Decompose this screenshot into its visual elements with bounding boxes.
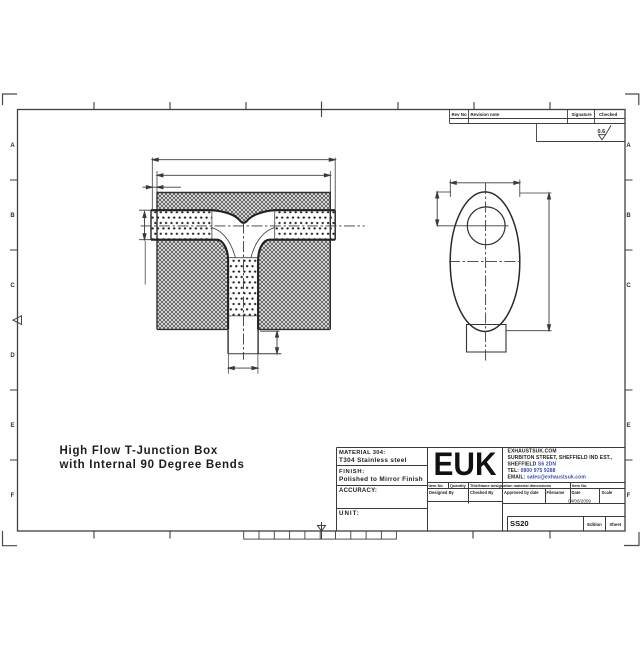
svg-text:04/06/2009: 04/06/2009 [568,498,591,503]
svg-text:EUK: EUK [434,446,497,482]
svg-text:UNIT:: UNIT: [339,510,360,517]
svg-text:SS20: SS20 [510,519,529,528]
svg-text:Edition: Edition [587,522,602,527]
svg-text:FINISH:: FINISH: [339,469,365,475]
svg-text:B: B [626,213,631,219]
svg-text:Item No: Item No [429,483,444,488]
svg-text:F: F [11,493,15,499]
svg-text:F: F [627,493,631,499]
svg-text:Polished to Mirror Finish: Polished to Mirror Finish [339,476,423,483]
svg-text:EMAIL: sales@exhaustsuk.com: EMAIL: sales@exhaustsuk.com [508,475,587,481]
svg-text:Checked By: Checked By [470,490,494,495]
svg-text:A: A [10,143,15,149]
svg-text:EXHAUSTSUK.COM: EXHAUSTSUK.COM [508,449,557,455]
svg-text:Filename: Filename [547,490,565,495]
svg-text:Date: Date [572,490,582,495]
svg-text:TEL: 0800 975 9288: TEL: 0800 975 9288 [508,468,556,474]
svg-text:C: C [626,283,631,289]
svg-text:Signature: Signature [572,112,593,117]
svg-text:T304 Stainless steel: T304 Stainless steel [339,457,407,464]
svg-text:B: B [10,213,15,219]
svg-text:E: E [10,423,14,429]
svg-text:C: C [10,283,15,289]
svg-text:SURBITON STREET, SHEFFIELD IND: SURBITON STREET, SHEFFIELD IND EST., [508,455,613,461]
svg-text:SHEFFIELD S6 2DN: SHEFFIELD S6 2DN [508,462,557,468]
svg-text:Checked: Checked [599,112,618,117]
svg-text:Quantity: Quantity [450,483,467,488]
svg-text:0.6: 0.6 [598,129,606,135]
svg-text:High Flow T-Junction Box: High Flow T-Junction Box [60,445,218,457]
svg-text:Item No.: Item No. [572,483,587,488]
svg-text:with Internal 90 Degree Bends: with Internal 90 Degree Bends [59,459,245,471]
svg-text:D: D [10,353,15,359]
svg-text:Scale: Scale [602,490,613,495]
svg-text:Title/Name designation materia: Title/Name designation material dimensio… [470,483,551,488]
svg-text:MATERIAL 304:: MATERIAL 304: [339,450,386,456]
svg-text:E: E [626,423,630,429]
svg-text:ACCURACY:: ACCURACY: [339,488,377,494]
svg-text:Revision note: Revision note [471,112,500,117]
svg-text:A: A [626,143,631,149]
svg-text:Approved by date: Approved by date [504,490,539,495]
svg-text:Designed By: Designed By [429,490,455,495]
svg-text:Sheet: Sheet [609,522,621,527]
svg-text:Rev No: Rev No [452,112,467,117]
